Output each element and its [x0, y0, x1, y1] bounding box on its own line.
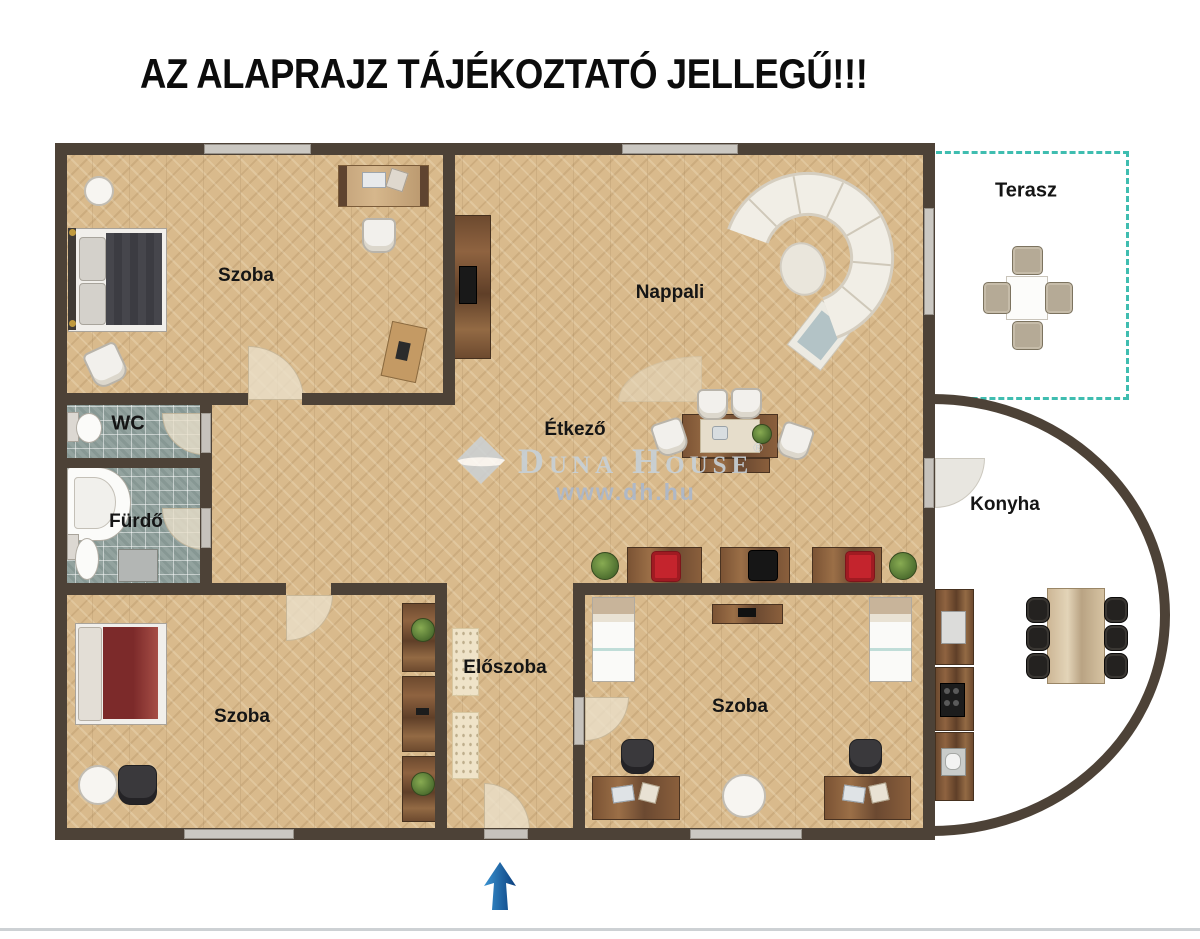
stove-burner [953, 700, 959, 706]
office-chair [118, 765, 157, 805]
disclaimer-title: AZ ALAPRAJZ TÁJÉKOZTATÓ JELLEGŰ!!! [140, 50, 867, 98]
kitchen-chair [1104, 625, 1128, 651]
dining-table-runner [700, 419, 760, 453]
sink-basin [945, 753, 961, 770]
stove-burner [953, 688, 959, 694]
room-label-szoba-bottom-left: Szoba [214, 706, 270, 728]
wall-bottomleft-east [435, 583, 447, 840]
room-label-nappali: Nappali [636, 282, 705, 304]
study-chair [849, 739, 882, 774]
shelf-plant [411, 772, 435, 796]
window-bottom-right [690, 829, 802, 839]
desk-laptop [362, 172, 386, 188]
wall-bottomleft-north-a [55, 583, 286, 595]
toilet-bowl [76, 413, 102, 443]
room-label-eloszoba: Előszoba [463, 657, 546, 679]
bed-pillow [79, 283, 106, 325]
stove-burner [944, 700, 950, 706]
small-round-table [78, 765, 118, 805]
window-top-left [204, 144, 311, 154]
table-plant [752, 424, 772, 444]
kitchen-chair [1104, 597, 1128, 623]
dining-chair [731, 388, 762, 419]
terrace-chair-right [1045, 282, 1073, 314]
terrace-table [1006, 276, 1048, 320]
kitchen-dining-table [1047, 588, 1105, 684]
desk-papers [842, 785, 866, 804]
bed-pillow [79, 237, 106, 281]
bed-blanket-red [103, 627, 158, 719]
kitchen-door [924, 458, 934, 508]
entrance-door [484, 829, 528, 839]
wall-bedroom-livingroom [443, 143, 455, 405]
room-label-terasz: Terasz [995, 180, 1057, 203]
wc-door [201, 413, 211, 453]
wall-bottomleft-north-b [331, 583, 447, 595]
floor-plant [591, 552, 619, 580]
workdesk-chair-black [748, 550, 778, 581]
room-label-etkezo: Étkező [544, 419, 605, 441]
window-bottom-left [184, 829, 294, 839]
north-arrow-icon [484, 862, 516, 910]
cabinet-handle [416, 708, 429, 715]
table-dishes [712, 426, 728, 440]
tv-screen [459, 266, 477, 304]
hall-runner-rug [452, 712, 479, 779]
room-label-wc: WC [111, 413, 144, 436]
bedroom-door [574, 697, 584, 745]
window-top-right [622, 144, 738, 154]
study-desk [592, 776, 680, 820]
dishwasher [941, 611, 966, 644]
stove-burner [944, 688, 950, 694]
sink-bowl [75, 538, 99, 580]
dining-bench [700, 458, 770, 473]
dining-chair [697, 389, 728, 420]
floor-plant [889, 552, 917, 580]
terrace-chair-top [1012, 246, 1043, 275]
wall-bottomright-north [573, 583, 935, 595]
study-desk [824, 776, 911, 820]
shelf-plant [411, 618, 435, 642]
desk-chair-white [362, 218, 396, 253]
single-bed [869, 597, 912, 682]
desk-papers [611, 785, 635, 804]
side-table [84, 176, 114, 206]
bed-pillow [78, 627, 102, 721]
terrace-chair-left [983, 282, 1011, 314]
workdesk-chair-red [845, 551, 875, 582]
tv-screen-small [738, 608, 756, 617]
wall-exterior-top [55, 143, 935, 155]
wall-wc-furdo-divider [55, 458, 212, 468]
kitchen-chair [1026, 597, 1050, 623]
bed-blanket-dark [106, 233, 162, 325]
bed-headboard [68, 228, 76, 330]
study-chair [621, 739, 654, 774]
bed-lamp [69, 229, 76, 236]
workdesk-chair-red [651, 551, 681, 582]
wall-exterior-left [55, 143, 67, 840]
floorplan-canvas: AZ ALAPRAJZ TÁJÉKOZTATÓ JELLEGŰ!!! [0, 0, 1200, 939]
round-table [722, 774, 766, 818]
single-bed [592, 597, 635, 682]
room-label-szoba-top: Szoba [218, 265, 274, 287]
bottom-edge-line [0, 928, 1200, 931]
bed-lamp [69, 320, 76, 327]
washing-machine [118, 549, 158, 582]
wall-bedroom-south-b [302, 393, 455, 405]
kitchen-chair [1104, 653, 1128, 679]
room-label-furdo: Fürdő [109, 511, 163, 533]
desk-papers [868, 782, 889, 803]
room-label-szoba-bottom-right: Szoba [712, 696, 768, 718]
wall-bedroom-south-a [55, 393, 248, 405]
room-label-konyha: Konyha [970, 494, 1040, 516]
terrace-sliding-door [924, 208, 934, 315]
kitchen-chair [1026, 625, 1050, 651]
furdo-door [201, 508, 211, 548]
terrace-chair-bottom [1012, 321, 1043, 350]
kitchen-chair [1026, 653, 1050, 679]
